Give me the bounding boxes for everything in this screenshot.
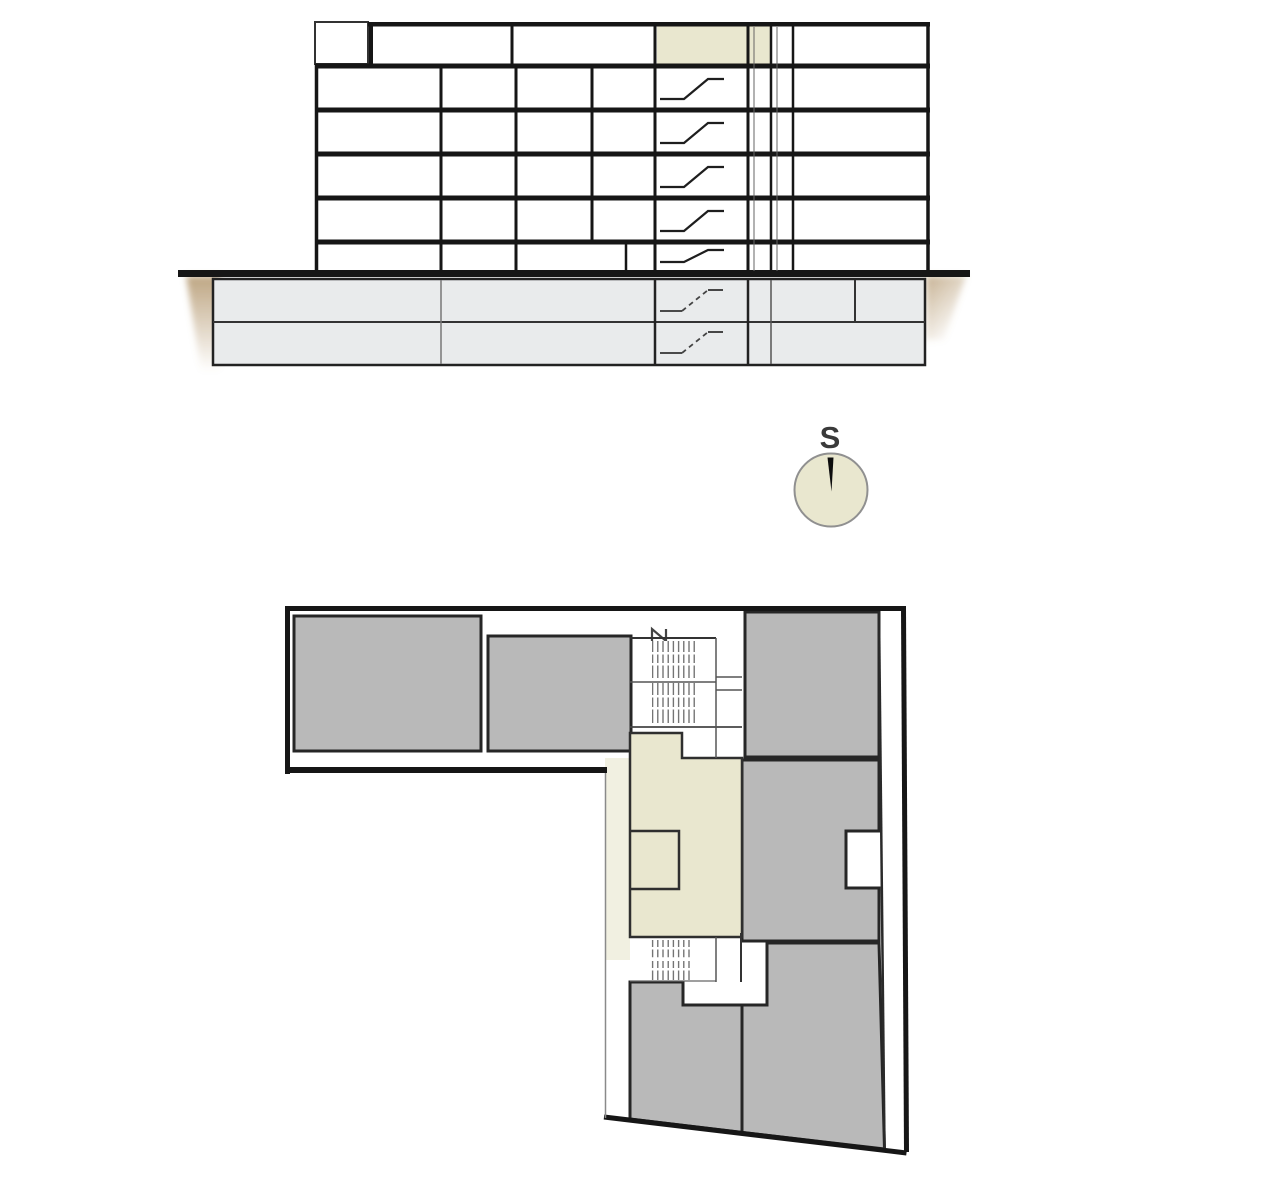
stair-direction-mark bbox=[652, 629, 666, 641]
plan-room-northwest-large bbox=[294, 616, 481, 751]
compass-label: S bbox=[820, 420, 841, 455]
floor-slab-3 bbox=[315, 152, 930, 157]
stair-flight-hatch-1 bbox=[652, 641, 697, 678]
roof-setback-box bbox=[315, 22, 368, 64]
stair-tread-gap bbox=[652, 652, 697, 655]
plan-room-south bbox=[630, 982, 742, 1133]
stair-tread-gap bbox=[652, 707, 697, 710]
plan-room-north-second bbox=[488, 636, 631, 751]
plan-wing-wall-south bbox=[287, 767, 607, 773]
architectural-drawing-sheet: S bbox=[0, 0, 1280, 1186]
floor-slab-1 bbox=[315, 240, 930, 245]
plan-room-southeast bbox=[742, 943, 885, 1149]
plan-room-east-middle bbox=[742, 760, 879, 941]
floor-slab-5 bbox=[315, 64, 930, 69]
plan-outer-wall-right bbox=[904, 608, 907, 1152]
stair-symbol-floor2 bbox=[660, 211, 724, 231]
building-section bbox=[178, 22, 970, 372]
stair-symbol-floor5 bbox=[660, 79, 724, 99]
compass: S bbox=[795, 420, 868, 527]
floor-slab-4 bbox=[315, 108, 930, 113]
stair-tread-gap bbox=[650, 947, 692, 950]
stair-tread-gap bbox=[650, 968, 692, 971]
stair-symbol-floor1 bbox=[660, 250, 724, 262]
drawing-svg: S bbox=[0, 0, 1280, 1186]
plan-room-northeast bbox=[745, 612, 879, 757]
plan-stairwell-lower bbox=[630, 933, 741, 982]
stair-tread-gap bbox=[652, 695, 697, 698]
plan-outer-wall-left bbox=[285, 608, 290, 774]
plan-unit-balcony bbox=[605, 758, 630, 960]
stair-tread-gap bbox=[652, 663, 697, 666]
floor-slab-2 bbox=[315, 196, 930, 201]
stair-flight-hatch-2 bbox=[652, 683, 697, 723]
roof-slab bbox=[368, 22, 930, 27]
stair-symbol-floor4 bbox=[660, 123, 724, 143]
ground-line bbox=[178, 270, 970, 277]
floor-plan bbox=[285, 606, 907, 1153]
stair-symbol-floor3 bbox=[660, 167, 724, 187]
earth-cut-right bbox=[926, 276, 966, 340]
plan-highlighted-unit bbox=[630, 733, 742, 937]
plan-outer-wall-top bbox=[285, 606, 906, 611]
